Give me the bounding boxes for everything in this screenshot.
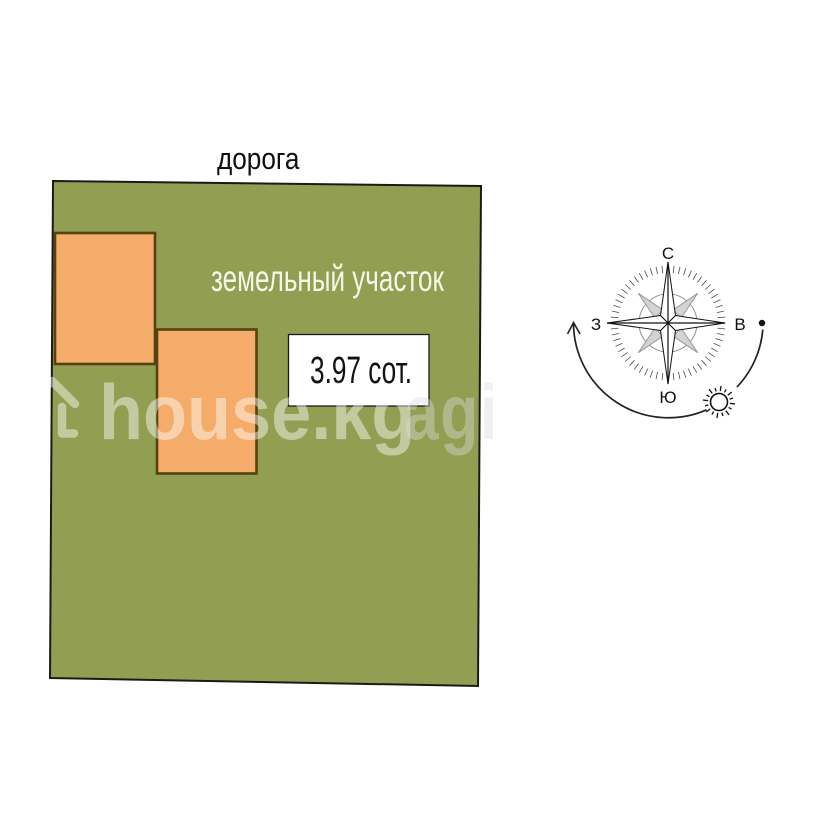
svg-text:В: В	[734, 315, 745, 334]
svg-text:agi: agi	[404, 368, 499, 455]
svg-text:С: С	[662, 244, 674, 263]
svg-text:Ю: Ю	[659, 388, 676, 407]
svg-text:дорога: дорога	[217, 142, 299, 177]
svg-text:house.kg: house.kg	[99, 368, 415, 455]
svg-text:земельный участок: земельный участок	[211, 257, 445, 299]
svg-text:З: З	[591, 315, 601, 334]
